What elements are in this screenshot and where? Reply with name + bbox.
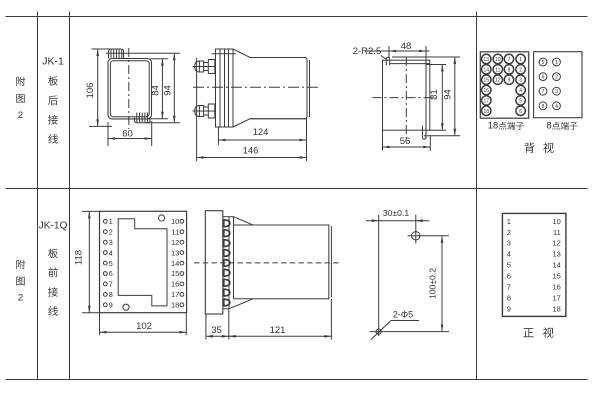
svg-text:4: 4	[555, 104, 558, 110]
svg-text:94: 94	[442, 89, 453, 100]
svg-text:5: 5	[109, 259, 113, 268]
svg-text:17: 17	[484, 98, 490, 104]
svg-text:8: 8	[542, 104, 545, 110]
svg-text:118: 118	[74, 250, 85, 265]
svg-text:2: 2	[18, 293, 23, 304]
svg-text:9: 9	[508, 78, 511, 84]
svg-text:2: 2	[109, 227, 113, 236]
svg-text:35: 35	[211, 325, 222, 336]
svg-text:11: 11	[553, 228, 561, 237]
svg-text:12: 12	[495, 78, 501, 84]
svg-text:48: 48	[401, 41, 412, 52]
svg-text:18: 18	[552, 305, 560, 314]
svg-text:11: 11	[172, 227, 180, 236]
svg-text:18: 18	[171, 301, 179, 310]
svg-text:2: 2	[507, 228, 511, 237]
svg-text:4: 4	[519, 88, 522, 94]
svg-text:2: 2	[18, 110, 23, 121]
svg-text:4: 4	[507, 250, 511, 259]
svg-text:2: 2	[555, 75, 558, 81]
svg-text:60: 60	[122, 129, 133, 140]
svg-text:8: 8	[507, 294, 511, 303]
svg-text:15: 15	[484, 78, 490, 84]
svg-text:1: 1	[507, 217, 511, 226]
svg-text:30±0.1: 30±0.1	[383, 208, 409, 218]
svg-text:9: 9	[507, 305, 511, 314]
svg-text:JK-1: JK-1	[42, 56, 64, 68]
svg-text:JK-1Q: JK-1Q	[39, 220, 68, 231]
svg-text:3: 3	[109, 238, 113, 247]
svg-text:13: 13	[484, 57, 490, 63]
svg-text:7: 7	[508, 57, 511, 63]
svg-text:13: 13	[171, 248, 179, 257]
svg-text:12: 12	[552, 239, 560, 248]
svg-text:18: 18	[488, 121, 499, 132]
svg-text:17: 17	[552, 294, 560, 303]
svg-text:102: 102	[136, 321, 152, 332]
svg-text:146: 146	[243, 145, 259, 156]
svg-text:10: 10	[552, 217, 560, 226]
svg-text:14: 14	[171, 259, 179, 268]
svg-text:3: 3	[507, 239, 511, 248]
svg-text:16: 16	[552, 283, 560, 292]
svg-text:7: 7	[542, 89, 545, 95]
svg-text:2-R2.5: 2-R2.5	[353, 46, 382, 57]
svg-text:3: 3	[519, 78, 522, 84]
svg-text:5: 5	[519, 98, 522, 104]
svg-text:6: 6	[542, 75, 545, 81]
svg-text:17: 17	[171, 290, 179, 299]
svg-text:18: 18	[484, 109, 490, 115]
svg-text:16: 16	[171, 280, 179, 289]
svg-text:3: 3	[555, 89, 558, 95]
svg-text:6: 6	[507, 272, 511, 281]
svg-text:9: 9	[109, 301, 113, 310]
svg-text:121: 121	[270, 325, 286, 336]
svg-text:8: 8	[109, 290, 113, 299]
svg-text:14: 14	[484, 67, 490, 73]
svg-text:2-Φ5: 2-Φ5	[393, 310, 413, 320]
svg-text:2: 2	[519, 67, 522, 73]
svg-text:10: 10	[495, 57, 501, 63]
svg-text:106: 106	[85, 83, 96, 99]
svg-text:7: 7	[109, 280, 113, 289]
svg-text:84: 84	[151, 85, 162, 96]
svg-text:11: 11	[495, 67, 500, 73]
svg-text:10: 10	[171, 217, 179, 226]
svg-text:13: 13	[552, 250, 560, 259]
svg-text:1: 1	[109, 217, 113, 226]
svg-text:1: 1	[519, 57, 522, 63]
svg-text:94: 94	[163, 85, 174, 96]
svg-text:56: 56	[400, 136, 411, 147]
svg-text:1: 1	[555, 60, 558, 66]
svg-text:5: 5	[542, 60, 545, 66]
svg-text:6: 6	[519, 109, 522, 115]
svg-text:14: 14	[552, 261, 560, 270]
svg-text:8: 8	[546, 121, 551, 132]
svg-text:4: 4	[109, 248, 113, 257]
svg-text:15: 15	[552, 272, 560, 281]
svg-text:16: 16	[484, 88, 490, 94]
svg-text:15: 15	[171, 269, 179, 278]
svg-text:8: 8	[508, 67, 511, 73]
svg-text:124: 124	[253, 127, 269, 138]
svg-text:12: 12	[171, 238, 179, 247]
svg-text:100±0.2: 100±0.2	[428, 268, 438, 299]
svg-text:5: 5	[507, 261, 511, 270]
svg-text:81: 81	[429, 89, 440, 100]
svg-text:6: 6	[109, 269, 113, 278]
svg-text:7: 7	[507, 283, 511, 292]
